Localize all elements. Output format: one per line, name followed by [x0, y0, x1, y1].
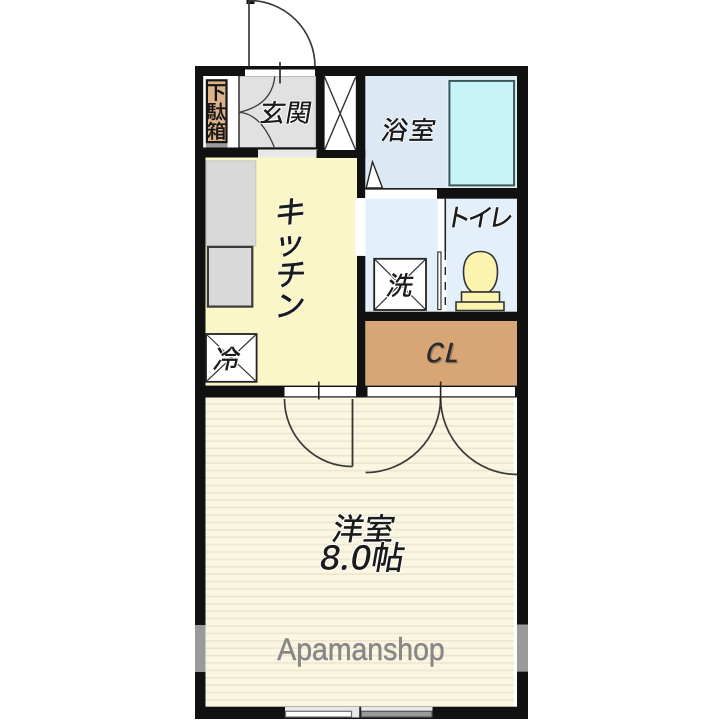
svg-text:Apamanshop: Apamanshop — [277, 631, 444, 667]
